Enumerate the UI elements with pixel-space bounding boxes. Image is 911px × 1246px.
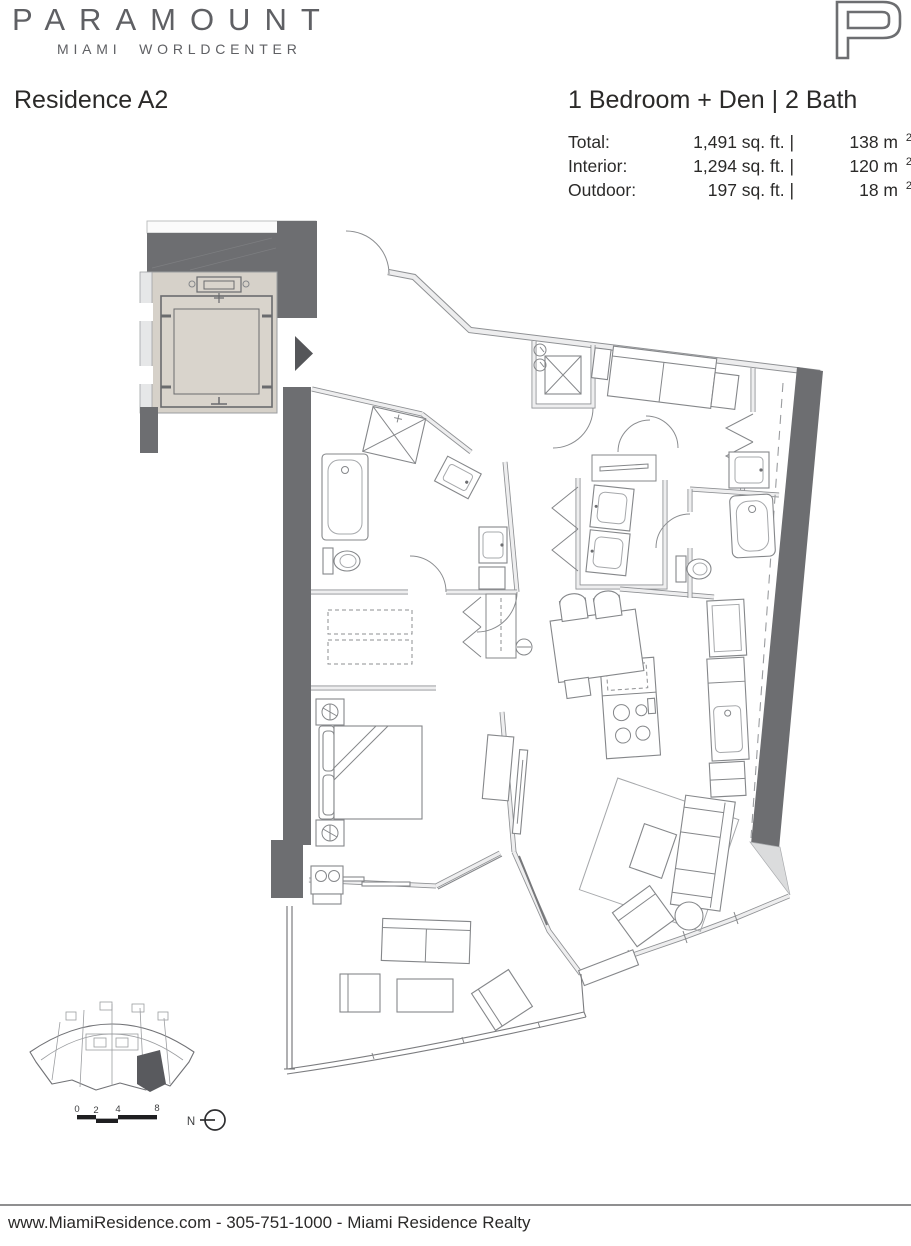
scale-tick: 8 xyxy=(154,1103,159,1114)
scale-tick: 2 xyxy=(93,1105,98,1116)
bedroom xyxy=(316,699,529,846)
living-room xyxy=(579,778,739,986)
bench-icon xyxy=(579,950,639,986)
den-double-door-icon xyxy=(618,416,678,452)
balcony xyxy=(284,866,586,1074)
bathtub-icon xyxy=(322,454,368,540)
floorplan-sheet: PARAMOUNT MIAMI WORLDCENTER Residence A2… xyxy=(0,0,911,1246)
bathroom-door-icon xyxy=(410,556,446,592)
side-table-icon xyxy=(675,902,703,930)
floor-plan: 0 2 4 8 N xyxy=(0,0,911,1246)
closet-bifold-icon xyxy=(463,597,481,657)
mechanical-closet xyxy=(534,344,581,394)
shear-wall-left xyxy=(271,387,311,898)
master-bathroom xyxy=(322,407,507,589)
sink-icon xyxy=(479,527,507,589)
washer-icon xyxy=(590,485,634,531)
outdoor-chair-icon xyxy=(472,970,533,1031)
entry-door-icon xyxy=(346,231,389,274)
bedroom-door-icon xyxy=(477,592,517,632)
footer-contact: www.MiamiResidence.com - 305-751-1000 - … xyxy=(8,1213,530,1233)
den-sofa-icon xyxy=(607,346,740,411)
balcony-wedge xyxy=(750,842,790,895)
scale-tick: 4 xyxy=(115,1104,120,1115)
outdoor-chair-icon xyxy=(340,974,380,1012)
nightstand-icon xyxy=(316,699,344,725)
toilet-icon xyxy=(323,548,360,574)
key-plan xyxy=(30,1002,194,1092)
bathroom2-door-icon xyxy=(656,514,690,548)
unit-highlight xyxy=(137,1050,166,1092)
side-table-icon xyxy=(592,348,612,380)
scale-tick: 0 xyxy=(74,1104,79,1115)
north-label: N xyxy=(187,1116,195,1128)
outdoor-table-icon xyxy=(397,979,453,1012)
laundry-closet xyxy=(586,455,656,576)
north-arrow-icon: N xyxy=(187,1110,225,1130)
coffee-table-icon xyxy=(629,824,676,879)
entry-arrow-icon xyxy=(295,336,313,371)
scale-bar: 0 2 4 8 xyxy=(74,1103,159,1123)
nightstand-icon xyxy=(316,820,344,846)
laundry-bifold-icon xyxy=(552,487,578,571)
toilet-icon xyxy=(676,556,711,582)
armchair-icon xyxy=(612,886,674,947)
vanity-sink-icon xyxy=(729,452,769,488)
bed-icon xyxy=(319,726,422,819)
bathtub-icon xyxy=(729,494,775,558)
elevator-icon xyxy=(161,277,272,407)
shear-wall-right xyxy=(751,367,823,849)
bathroom-2 xyxy=(676,452,776,582)
tv-console-icon xyxy=(480,735,529,834)
kitchen-counter xyxy=(701,599,754,797)
dryer-icon xyxy=(586,530,630,576)
sofa-icon xyxy=(670,795,735,911)
ac-unit-icon xyxy=(311,866,343,904)
den xyxy=(590,344,741,411)
outdoor-sofa-icon xyxy=(381,918,470,963)
balcony-railing xyxy=(284,906,295,1069)
vanity-sink-icon xyxy=(435,456,482,499)
walk-in-closet xyxy=(328,594,516,664)
